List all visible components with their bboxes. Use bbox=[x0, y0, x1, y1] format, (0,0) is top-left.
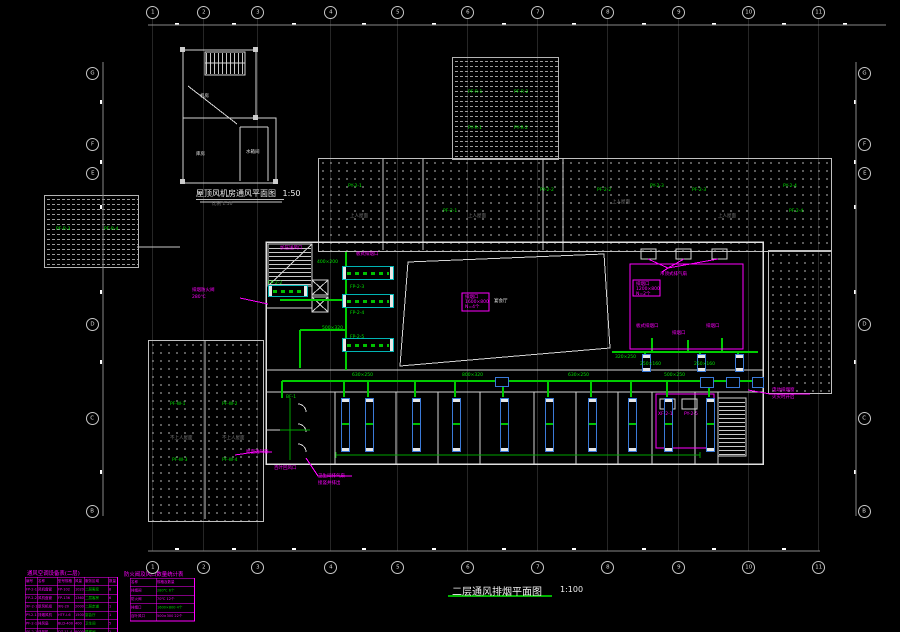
axis-bubble-label: 5 bbox=[396, 10, 399, 15]
room-name-label: 宴会厅 bbox=[494, 299, 508, 304]
axis-bubble: 9 bbox=[672, 561, 685, 574]
table-cell: 280℃ 6个 bbox=[157, 587, 195, 596]
table-cell: FP-2-1 bbox=[26, 586, 38, 595]
table-cell: BLD-400 bbox=[58, 620, 75, 629]
axis-bubble: F bbox=[86, 138, 99, 151]
axis-bubble: C bbox=[86, 412, 99, 425]
unit-coil-mark bbox=[629, 423, 636, 425]
axis-bubble-label: 4 bbox=[329, 10, 332, 15]
unit-coil-mark bbox=[347, 300, 389, 303]
axis-bubble: B bbox=[858, 505, 871, 518]
duct-branch-stub bbox=[343, 382, 345, 397]
duct-tag-label: FP-2-3 bbox=[350, 285, 364, 290]
axis-bubble: 2 bbox=[197, 6, 210, 19]
table-cell: FP-102 bbox=[58, 586, 75, 595]
table-cell: 编号 bbox=[26, 578, 38, 587]
duct-tag-label: PF-2-1 bbox=[443, 209, 457, 214]
annotation-label: 电动排烟窗 bbox=[772, 388, 795, 393]
table-cell: 400 bbox=[75, 620, 85, 629]
table-cell: 宴会厅 bbox=[85, 612, 109, 621]
axis-bubble: E bbox=[86, 167, 99, 180]
fan-coil-unit-vertical bbox=[412, 398, 421, 452]
axis-bubble-label: D bbox=[862, 322, 866, 327]
unit-cap bbox=[629, 448, 636, 451]
table-cell: DZ-11-4 bbox=[58, 629, 75, 632]
table-cell: 服务区域 bbox=[85, 578, 109, 587]
axis-bubble: 8 bbox=[601, 6, 614, 19]
axis-bubble-label: B bbox=[91, 509, 95, 514]
roof-area-label: 上人屋面 bbox=[350, 214, 368, 219]
unit-cap bbox=[643, 368, 650, 371]
table-cell: PY-2-1 bbox=[26, 612, 38, 621]
unit-coil-mark bbox=[273, 290, 303, 293]
table-cell: 8000 bbox=[75, 629, 85, 632]
axis-bubble: 3 bbox=[251, 561, 264, 574]
duct-tag-label: 630×250 bbox=[568, 373, 589, 378]
room-name-label: 机房 bbox=[200, 94, 209, 99]
annotation-label: 板式排烟口 bbox=[636, 324, 659, 329]
axis-bubble: D bbox=[858, 318, 871, 331]
drawing-lines bbox=[0, 0, 900, 632]
table-cell: 楼梯间 bbox=[85, 629, 109, 632]
inset-title-scale: 1:50 bbox=[283, 189, 301, 198]
fan-coil-unit-vertical bbox=[341, 398, 350, 452]
table-cell: 8 bbox=[109, 586, 118, 595]
axis-bubble: C bbox=[858, 412, 871, 425]
duct-tag-label: PY-R-1 bbox=[468, 126, 482, 131]
fan-coil-unit-vertical bbox=[628, 398, 637, 452]
cad-floor-plan-canvas: PY-2-1PF-2-1PY-2-2PF-2-2PY-2-3PF-2-3PY-2… bbox=[0, 0, 900, 632]
axis-bubble: G bbox=[858, 67, 871, 80]
table-cell: 2000 bbox=[75, 603, 85, 612]
table-cell: 风机盘管 bbox=[38, 595, 58, 604]
fan-coil-unit-horizontal bbox=[342, 294, 394, 308]
axis-bubble-label: G bbox=[90, 71, 94, 76]
axis-bubble-label: 8 bbox=[606, 10, 609, 15]
inset-title-sub: 比例 1:50 bbox=[212, 202, 233, 207]
axis-bubble-label: 7 bbox=[536, 10, 539, 15]
annotation-label: 屋面透气管 bbox=[246, 450, 269, 455]
table-cell: 1360 bbox=[75, 595, 85, 604]
duct-tag-label: PF-2-3 bbox=[692, 188, 706, 193]
table-cell: HTF-I-6 bbox=[58, 612, 75, 621]
axis-bubble-label: E bbox=[863, 171, 866, 176]
axis-bubble-label: 8 bbox=[606, 565, 609, 570]
fan-coil-unit-vertical bbox=[545, 398, 554, 452]
axis-bubble-label: 5 bbox=[396, 565, 399, 570]
fan-coil-unit-vertical bbox=[588, 398, 597, 452]
unit-cap bbox=[453, 448, 460, 451]
table-cell: 名称 bbox=[131, 579, 157, 588]
axis-bubble: 7 bbox=[531, 561, 544, 574]
axis-bubble-label: 4 bbox=[329, 565, 332, 570]
table-cell: 规格及数量 bbox=[157, 579, 195, 588]
table-cell: 排烟口 bbox=[131, 604, 157, 613]
table-cell: 型号规格 bbox=[58, 578, 75, 587]
room-name-label: 水箱间 bbox=[246, 150, 260, 155]
duct-tag-label: PF-W-4 bbox=[222, 458, 238, 463]
table-cell: 6 bbox=[109, 595, 118, 604]
annotation-label: 卫生间排气扇 bbox=[318, 474, 345, 479]
duct-branch-stub bbox=[414, 382, 416, 397]
table-cell: 送风机 bbox=[38, 629, 58, 632]
table-cell: 500×300 22个 bbox=[157, 613, 195, 622]
unit-cap bbox=[390, 267, 393, 279]
unit-cap bbox=[736, 368, 743, 371]
table-cell: 风机盘管 bbox=[38, 586, 58, 595]
unit-coil-mark bbox=[546, 423, 553, 425]
axis-bubble: 11 bbox=[812, 6, 825, 19]
roof-area-label: 不上人屋面 bbox=[222, 436, 245, 441]
duct-fitting bbox=[495, 377, 509, 387]
duct-branch-stub bbox=[630, 382, 632, 397]
axis-bubble: 7 bbox=[531, 6, 544, 19]
unit-cap bbox=[698, 368, 705, 371]
axis-bubble: 10 bbox=[742, 561, 755, 574]
table-cell: 1 bbox=[109, 612, 118, 621]
roof-area-label: 不上人屋面 bbox=[170, 436, 193, 441]
duct-tag-label: 800×320 bbox=[462, 373, 483, 378]
duct-tag-label: PY-R-2 bbox=[514, 126, 528, 131]
annotation-label: 排烟口 bbox=[706, 324, 720, 329]
unit-cap bbox=[501, 448, 508, 451]
unit-cap bbox=[501, 399, 508, 402]
fan-coil-unit-vertical bbox=[452, 398, 461, 452]
unit-coil-mark bbox=[501, 423, 508, 425]
unit-cap bbox=[698, 355, 705, 358]
fan-coil-unit-vertical bbox=[706, 398, 715, 452]
axis-bubble-label: 3 bbox=[256, 565, 259, 570]
annotation-label: 接竖井排出 bbox=[318, 481, 341, 486]
unit-cap bbox=[413, 399, 420, 402]
axis-bubble: 2 bbox=[197, 561, 210, 574]
unit-coil-mark bbox=[707, 423, 714, 425]
duct-tag-label: PF-2-4 bbox=[789, 209, 803, 214]
table-cell: 1 bbox=[109, 629, 118, 632]
axis-bubble-label: C bbox=[91, 416, 95, 421]
duct-tag-label: 500×320 bbox=[322, 326, 343, 331]
unit-cap bbox=[707, 399, 714, 402]
table-cell: 百叶风口 bbox=[131, 613, 157, 622]
fan-coil-unit-horizontal bbox=[342, 338, 394, 352]
duct-tag-label: 400×200 bbox=[317, 260, 338, 265]
table-cell: FP-136 bbox=[58, 595, 75, 604]
duct-branch-stub bbox=[666, 382, 668, 397]
fan-coil-unit-horizontal bbox=[342, 266, 394, 280]
axis-bubble: B bbox=[86, 505, 99, 518]
duct-tag-label: PF-W-2 bbox=[222, 402, 238, 407]
duct-tag-label: PY-2-4 bbox=[783, 184, 797, 189]
unit-cap bbox=[736, 355, 743, 358]
annotation-label: N=2个 bbox=[636, 292, 651, 297]
unit-coil-mark bbox=[453, 423, 460, 425]
axis-bubble: 1 bbox=[146, 6, 159, 19]
duct-tag-label: FP-2-4 bbox=[350, 311, 364, 316]
axis-bubble-label: 3 bbox=[256, 10, 259, 15]
unit-cap bbox=[304, 286, 307, 296]
table-cell: 防火阀 bbox=[131, 596, 157, 605]
unit-cap bbox=[342, 448, 349, 451]
table-cell: XF-2-1 bbox=[26, 603, 38, 612]
unit-cap bbox=[589, 399, 596, 402]
duct-tag-label: PY-2-3 bbox=[650, 184, 664, 189]
unit-cap bbox=[343, 295, 346, 307]
duct-tag-label: FP-2-5 bbox=[350, 335, 364, 340]
unit-coil-mark bbox=[347, 344, 389, 347]
table-cell: 二层客房 bbox=[85, 586, 109, 595]
table-cell: 5 bbox=[109, 620, 118, 629]
annotation-label: XF-2-1 bbox=[658, 412, 673, 417]
unit-cap bbox=[269, 286, 272, 296]
duct-branch-stub bbox=[367, 382, 369, 397]
duct-branch-stub bbox=[454, 382, 456, 397]
unit-cap bbox=[665, 399, 672, 402]
duct-tag-label: 630×250 bbox=[352, 373, 373, 378]
table-cell: 排烟风机 bbox=[38, 612, 58, 621]
duct-fitting bbox=[752, 377, 764, 388]
unit-cap bbox=[413, 448, 420, 451]
axis-bubble: 9 bbox=[672, 6, 685, 19]
unit-cap bbox=[390, 295, 393, 307]
duct-tag-label: PY-2-2 bbox=[540, 188, 554, 193]
axis-bubble: 5 bbox=[391, 561, 404, 574]
fan-coil-unit-vertical bbox=[664, 398, 673, 452]
axis-bubble: D bbox=[86, 318, 99, 331]
table-cell: 70℃ 12个 bbox=[157, 596, 195, 605]
table-cell: 数量 bbox=[109, 578, 118, 587]
annotation-label: 排烟口 bbox=[672, 331, 686, 336]
table-cell: FP-2-2 bbox=[26, 595, 38, 604]
unit-cap bbox=[366, 448, 373, 451]
unit-coil-mark bbox=[347, 272, 389, 275]
table-cell: 排风扇 bbox=[38, 620, 58, 629]
annotation-label: 板式排烟口 bbox=[356, 252, 379, 257]
unit-cap bbox=[546, 399, 553, 402]
roof-area-label: 上人屋面 bbox=[718, 214, 736, 219]
fan-coil-unit-vertical bbox=[500, 398, 509, 452]
unit-cap bbox=[546, 448, 553, 451]
table-cell: PF-2-1 bbox=[26, 620, 38, 629]
duct-tag-label: PF-R-1 bbox=[468, 90, 482, 95]
table-cell: 二层走道 bbox=[85, 603, 109, 612]
duct-tag-label: PF-R-2 bbox=[514, 90, 528, 95]
unit-coil-mark bbox=[665, 423, 672, 425]
duct-tag-label: PF-R-3 bbox=[56, 227, 70, 232]
equipment-table-title: 通风空调设备表(二层) bbox=[27, 569, 80, 577]
unit-cap bbox=[453, 399, 460, 402]
unit-coil-mark bbox=[342, 423, 349, 425]
axis-bubble-label: 7 bbox=[536, 565, 539, 570]
fan-coil-unit-horizontal bbox=[268, 285, 308, 297]
unit-cap bbox=[390, 339, 393, 351]
axis-bubble-label: B bbox=[863, 509, 867, 514]
duct-riser bbox=[735, 354, 744, 372]
unit-coil-mark bbox=[413, 423, 420, 425]
inset-plan-title: 屋顶风机房通风平面图 1:50 bbox=[196, 188, 301, 199]
damper-schedule-table: 名称规格及数量排烟阀280℃ 6个防火阀70℃ 12个排烟口1600×800 4… bbox=[130, 578, 195, 622]
table-cell: 排烟阀 bbox=[131, 587, 157, 596]
table-cell: 卫生间 bbox=[85, 620, 109, 629]
annotation-label: 排烟防火阀 bbox=[192, 288, 215, 293]
unit-cap bbox=[343, 339, 346, 351]
unit-coil-mark bbox=[366, 423, 373, 425]
annotation-label: 火灾时开启 bbox=[772, 395, 795, 400]
axis-bubble-label: 10 bbox=[745, 565, 752, 570]
axis-bubble: 6 bbox=[461, 6, 474, 19]
inset-title-underline bbox=[196, 199, 284, 200]
duct-tag-label: 500×250 bbox=[664, 373, 685, 378]
axis-bubble-label: F bbox=[863, 142, 866, 147]
drawing-title: 二层通风排烟平面图 bbox=[452, 583, 542, 598]
table-cell: 1600×800 4个 bbox=[157, 604, 195, 613]
unit-cap bbox=[366, 399, 373, 402]
axis-bubble: 5 bbox=[391, 6, 404, 19]
annotation-label: 百叶回风口 bbox=[274, 466, 297, 471]
axis-bubble: 1 bbox=[146, 561, 159, 574]
unit-coil-mark bbox=[589, 423, 596, 425]
axis-bubble-label: 2 bbox=[202, 565, 205, 570]
annotation-label: PY-2-5 bbox=[684, 412, 698, 417]
unit-cap bbox=[343, 267, 346, 279]
axis-bubble-label: 1 bbox=[151, 565, 154, 570]
table-cell: SF-2-1 bbox=[26, 629, 38, 632]
duct-tag-label: PF-W-1 bbox=[170, 402, 186, 407]
axis-bubble-label: 2 bbox=[202, 10, 205, 15]
table-cell: 名称 bbox=[38, 578, 58, 587]
unit-cap bbox=[665, 448, 672, 451]
axis-bubble-label: 9 bbox=[677, 565, 680, 570]
unit-cap bbox=[629, 399, 636, 402]
inset-title-text: 屋顶风机房通风平面图 bbox=[196, 189, 276, 198]
annotation-label: 加压送风口 bbox=[280, 246, 303, 251]
table-cell: 风量 bbox=[75, 578, 85, 587]
axis-bubble-label: 10 bbox=[745, 10, 752, 15]
axis-bubble: G bbox=[86, 67, 99, 80]
table-cell: XFJ-20 bbox=[58, 603, 75, 612]
unit-cap bbox=[342, 399, 349, 402]
axis-bubble: 11 bbox=[812, 561, 825, 574]
axis-bubble: 6 bbox=[461, 561, 474, 574]
roof-area-label: 上人屋面 bbox=[468, 214, 486, 219]
duct-tag-label: BF-1 bbox=[286, 395, 296, 400]
duct-branch-stub bbox=[590, 382, 592, 397]
duct-fitting bbox=[726, 377, 740, 388]
duct-tag-label: PY-2-1 bbox=[348, 184, 362, 189]
axis-bubble-label: 6 bbox=[466, 10, 469, 15]
duct-tag-label: FP-2-2 bbox=[268, 281, 282, 286]
duct-tag-label: PF-W-3 bbox=[172, 458, 188, 463]
table-cell: 新风机组 bbox=[38, 603, 58, 612]
duct-tag-label: PF-R-4 bbox=[104, 227, 118, 232]
axis-bubble-label: 11 bbox=[815, 565, 822, 570]
axis-bubble: 4 bbox=[324, 561, 337, 574]
axis-bubble-label: E bbox=[91, 171, 94, 176]
axis-bubble: 4 bbox=[324, 6, 337, 19]
table-cell: 二层客房 bbox=[85, 595, 109, 604]
axis-bubble: 10 bbox=[742, 6, 755, 19]
axis-bubble-label: D bbox=[90, 322, 94, 327]
axis-bubble-label: 11 bbox=[815, 10, 822, 15]
annotation-label: 吊顶式排气扇 bbox=[660, 272, 687, 277]
unit-cap bbox=[707, 448, 714, 451]
annotation-label: 280℃ bbox=[192, 295, 206, 300]
table-cell: 1020 bbox=[75, 586, 85, 595]
axis-bubble-label: G bbox=[862, 71, 866, 76]
axis-bubble: 3 bbox=[251, 6, 264, 19]
duct-tag-label: 250×160 bbox=[640, 362, 661, 367]
room-name-label: 库房 bbox=[196, 152, 205, 157]
annotation-label: N=4个 bbox=[465, 305, 480, 310]
axis-bubble: 8 bbox=[601, 561, 614, 574]
unit-cap bbox=[643, 355, 650, 358]
axis-bubble-label: F bbox=[91, 142, 94, 147]
equipment-schedule-table: 编号名称型号规格风量服务区域数量FP-2-1风机盘管FP-1021020二层客房… bbox=[25, 577, 118, 632]
duct-fitting bbox=[700, 377, 714, 388]
axis-bubble: F bbox=[858, 138, 871, 151]
drawing-title-scale: 1:100 bbox=[560, 585, 583, 594]
axis-bubble-label: 1 bbox=[151, 10, 154, 15]
duct-branch-stub bbox=[547, 382, 549, 397]
table-cell: 15000 bbox=[75, 612, 85, 621]
roof-area-label: 上人屋面 bbox=[612, 200, 630, 205]
duct-tag-label: 320×250 bbox=[615, 355, 636, 360]
axis-bubble-label: C bbox=[863, 416, 867, 421]
fan-coil-unit-vertical bbox=[365, 398, 374, 452]
unit-cap bbox=[589, 448, 596, 451]
duct-tag-label: PF-2-2 bbox=[597, 188, 611, 193]
axis-bubble: E bbox=[858, 167, 871, 180]
axis-bubble-label: 9 bbox=[677, 10, 680, 15]
duct-tag-label: 250×160 bbox=[694, 362, 715, 367]
table-cell: 1 bbox=[109, 603, 118, 612]
axis-bubble-label: 6 bbox=[466, 565, 469, 570]
